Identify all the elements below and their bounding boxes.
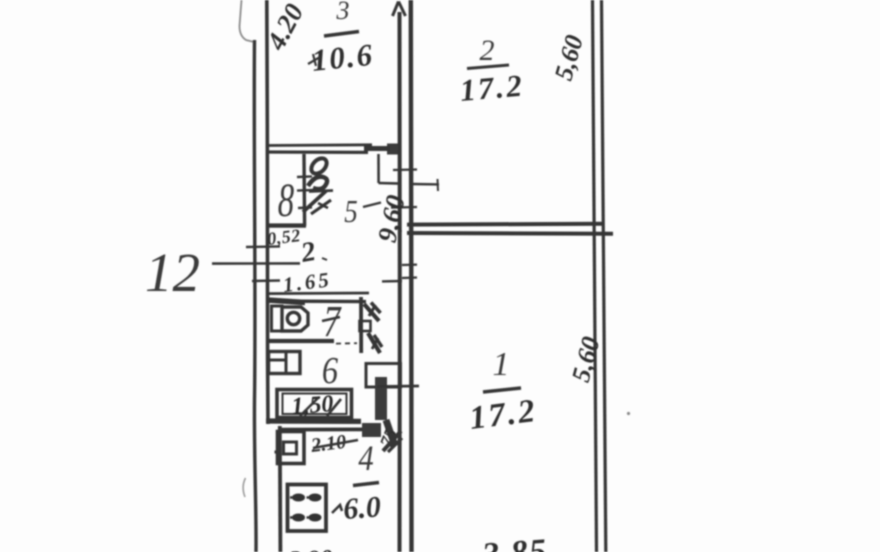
svg-text:6.0: 6.0 — [342, 490, 382, 526]
svg-text:3.85: 3.85 — [480, 533, 549, 552]
svg-text:5,60: 5,60 — [549, 32, 589, 84]
svg-text:5: 5 — [344, 195, 358, 229]
svg-text:0,52: 0,52 — [266, 225, 302, 249]
svg-text:6: 6 — [322, 350, 339, 392]
svg-text:17.2: 17.2 — [468, 393, 540, 437]
svg-text:7: 7 — [324, 297, 342, 346]
svg-text:3: 3 — [336, 0, 350, 25]
svg-text:2: 2 — [298, 236, 318, 269]
svg-text:1: 1 — [493, 346, 510, 383]
svg-text:12: 12 — [145, 242, 200, 303]
svg-text:17.2: 17.2 — [459, 68, 526, 108]
svg-text:2: 2 — [480, 34, 495, 67]
svg-text:5,60: 5,60 — [566, 334, 606, 385]
svg-text:8: 8 — [278, 174, 294, 226]
svg-text:2.90: 2.90 — [287, 545, 333, 552]
svg-text:9,60: 9,60 — [372, 192, 411, 245]
svg-text:4: 4 — [358, 439, 373, 479]
